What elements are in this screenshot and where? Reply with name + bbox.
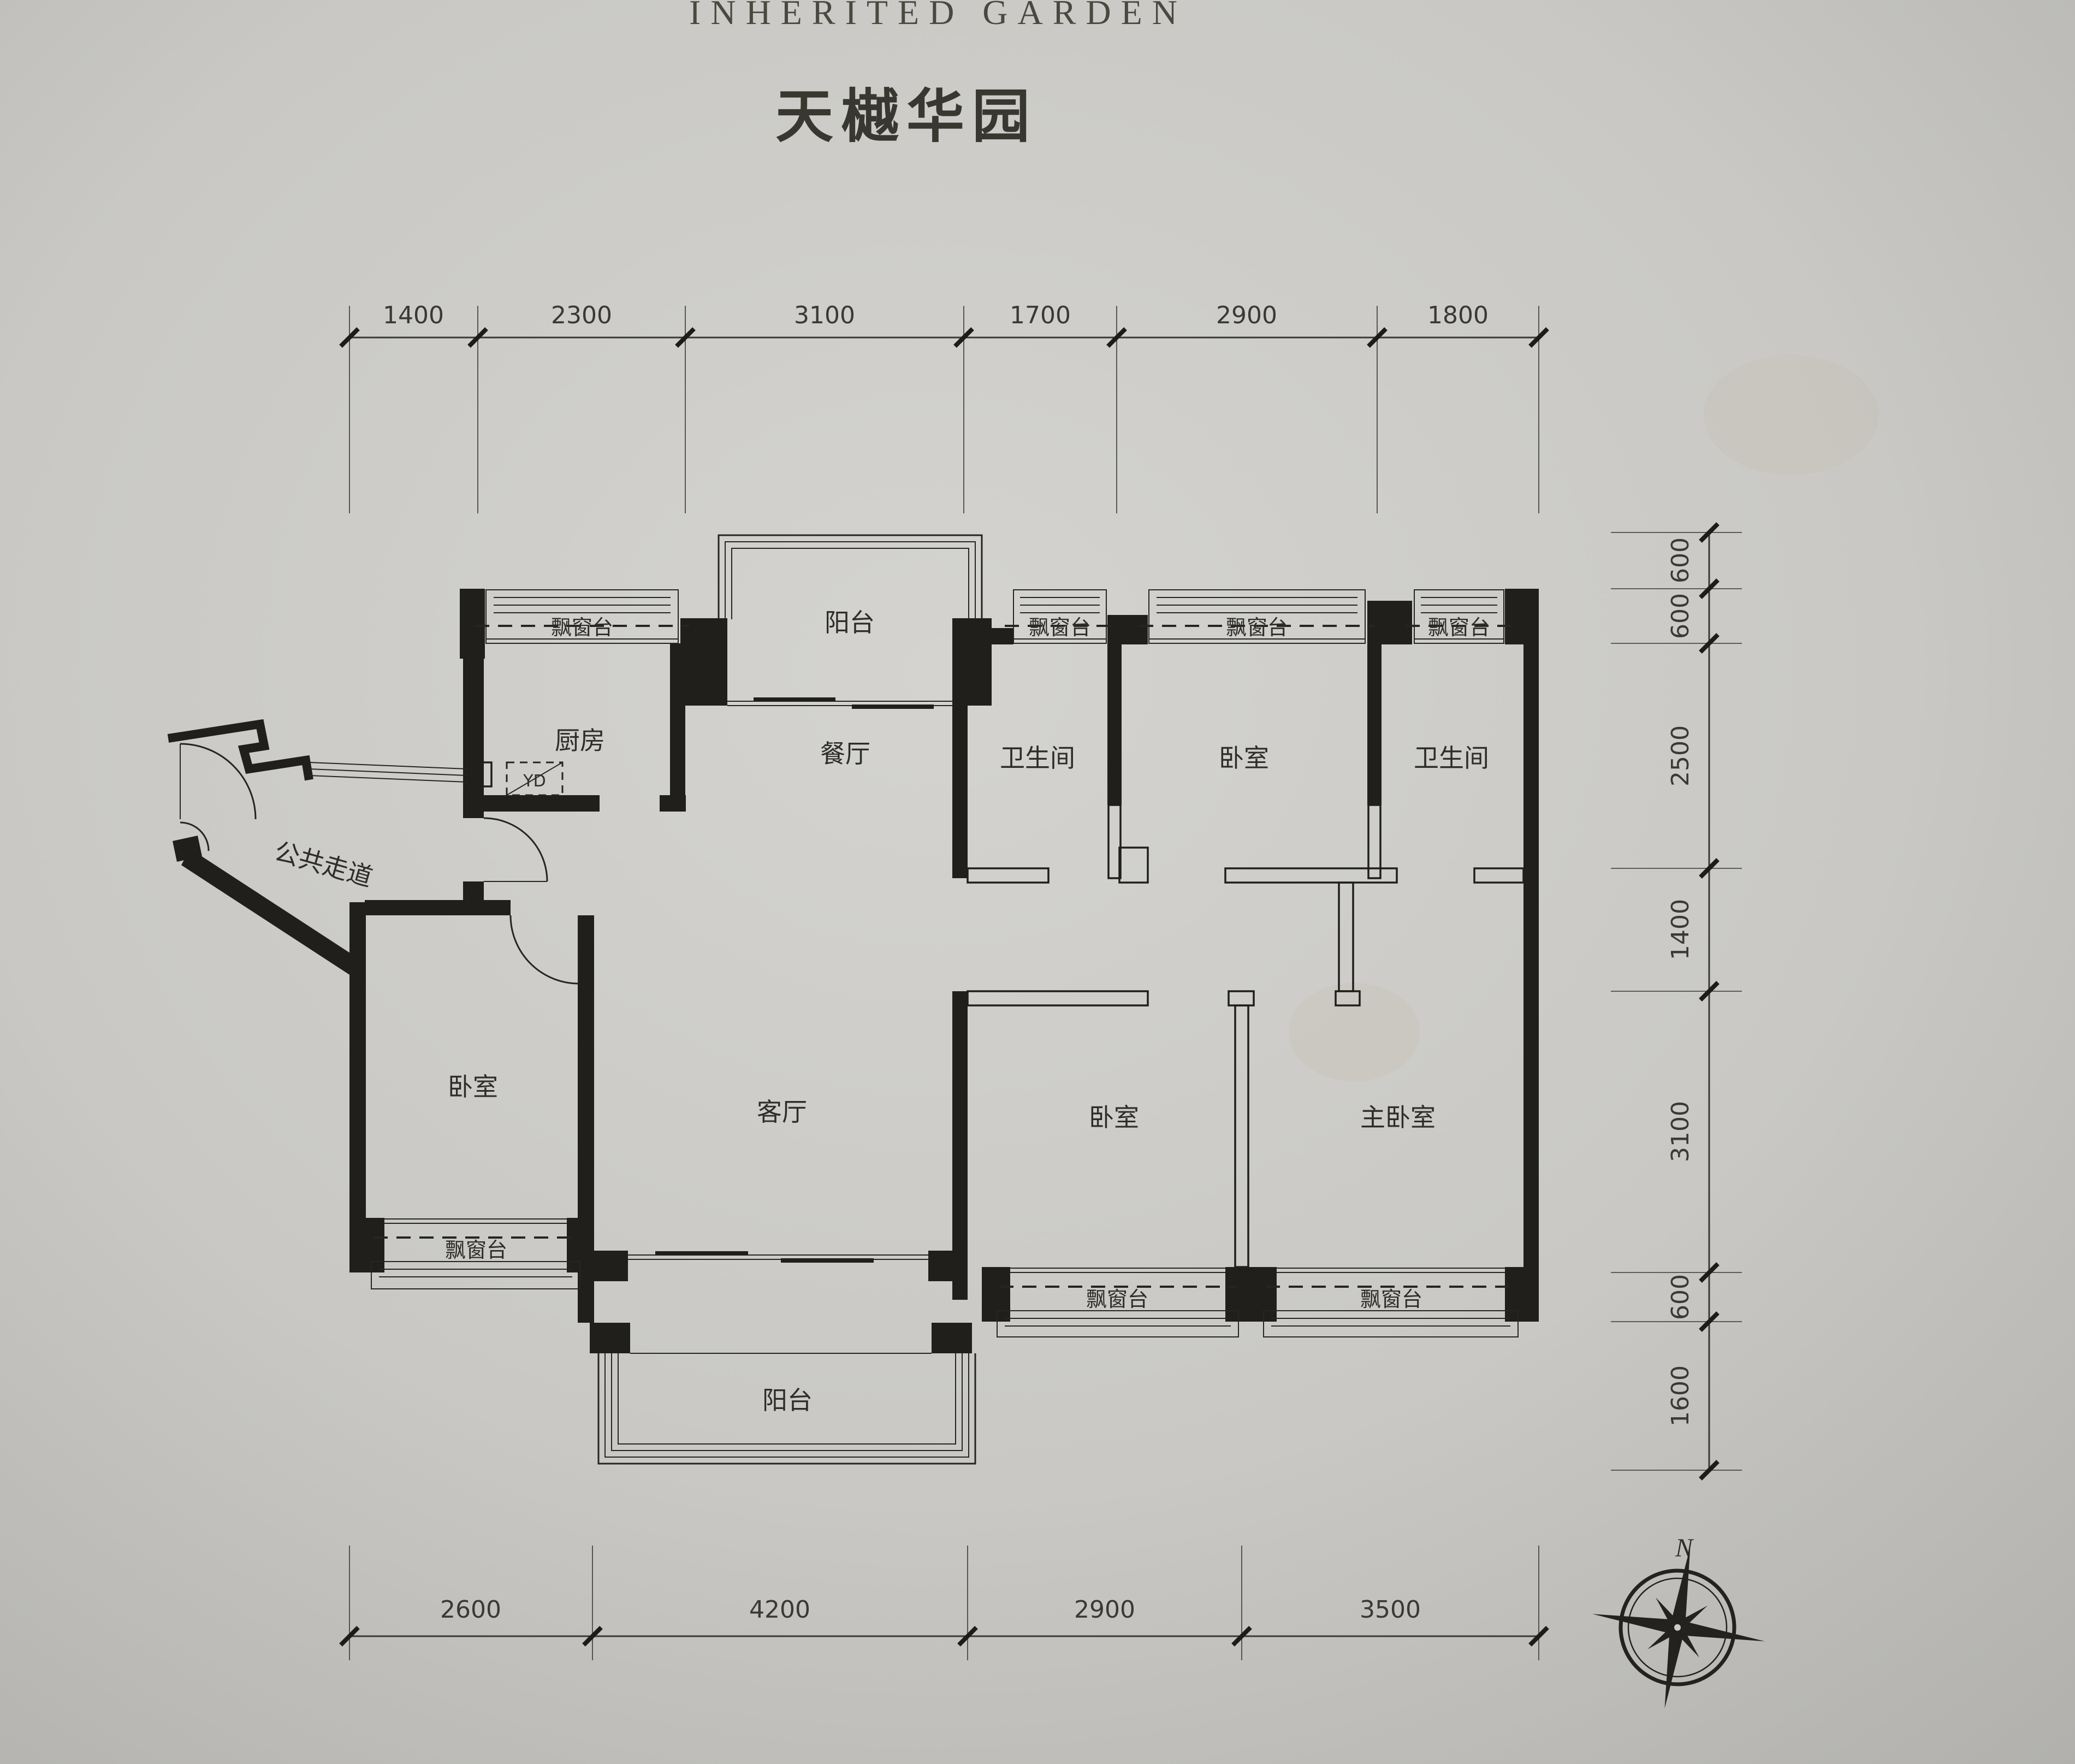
bay-window-label: 飘窗台 — [1428, 615, 1490, 640]
dim-top-5: 2900 — [1216, 301, 1277, 329]
room-label-kitchen: 厨房 — [555, 726, 605, 755]
dim-top-2: 2300 — [551, 301, 612, 329]
floor-plan-page: INHERITED GARDEN 天樾华园 — [0, 0, 2075, 1764]
dim-top-1: 1400 — [383, 301, 444, 329]
bay-window-label: 飘窗台 — [1360, 1287, 1422, 1311]
dim-top-3: 3100 — [794, 301, 855, 329]
dim-bottom-1: 2600 — [440, 1596, 501, 1624]
dim-bottom-4: 3500 — [1360, 1596, 1421, 1624]
dim-right-5: 3100 — [1667, 1101, 1694, 1162]
meter-box-label: YD — [523, 772, 546, 791]
dim-bottom-2: 4200 — [749, 1596, 810, 1624]
bay-window-label: 飘窗台 — [1086, 1287, 1148, 1311]
paper-stain — [1704, 355, 1878, 475]
dim-top-6: 1800 — [1427, 301, 1489, 329]
bay-window-label: 飘窗台 — [551, 615, 613, 640]
bay-window-label: 飘窗台 — [1029, 615, 1091, 640]
room-label-master-bedroom: 主卧室 — [1360, 1103, 1436, 1132]
dim-right-6: 600 — [1667, 1274, 1694, 1320]
project-title-english: INHERITED GARDEN — [689, 0, 1187, 32]
dim-top-4: 1700 — [1010, 301, 1071, 329]
room-label-bathroom-2: 卫生间 — [1414, 743, 1489, 773]
bay-window-label: 飘窗台 — [445, 1238, 507, 1262]
dim-right-4: 1400 — [1667, 899, 1694, 960]
room-label-dining: 餐厅 — [820, 739, 870, 768]
room-label-balcony-bottom: 阳台 — [762, 1386, 813, 1415]
dim-right-1: 600 — [1667, 537, 1694, 583]
bay-window-label: 飘窗台 — [1226, 615, 1288, 640]
dim-right-3: 2500 — [1667, 725, 1694, 786]
paper-stain — [1289, 983, 1420, 1081]
room-label-living: 客厅 — [757, 1097, 807, 1127]
dim-right-7: 1600 — [1667, 1365, 1694, 1426]
dim-right-2: 600 — [1667, 593, 1694, 639]
room-label-bedroom-top: 卧室 — [1219, 743, 1269, 773]
room-label-balcony-top: 阳台 — [825, 608, 875, 637]
room-label-bedroom-bottom: 卧室 — [1089, 1103, 1139, 1132]
room-label-bedroom-left: 卧室 — [448, 1072, 498, 1102]
room-label-bathroom-1: 卫生间 — [1000, 743, 1075, 773]
compass-north-label: N — [1675, 1534, 1694, 1562]
project-title-chinese: 天樾华园 — [775, 85, 1037, 149]
dim-bottom-3: 2900 — [1074, 1596, 1135, 1624]
floor-plan-drawing: INHERITED GARDEN 天樾华园 — [0, 0, 2075, 1764]
